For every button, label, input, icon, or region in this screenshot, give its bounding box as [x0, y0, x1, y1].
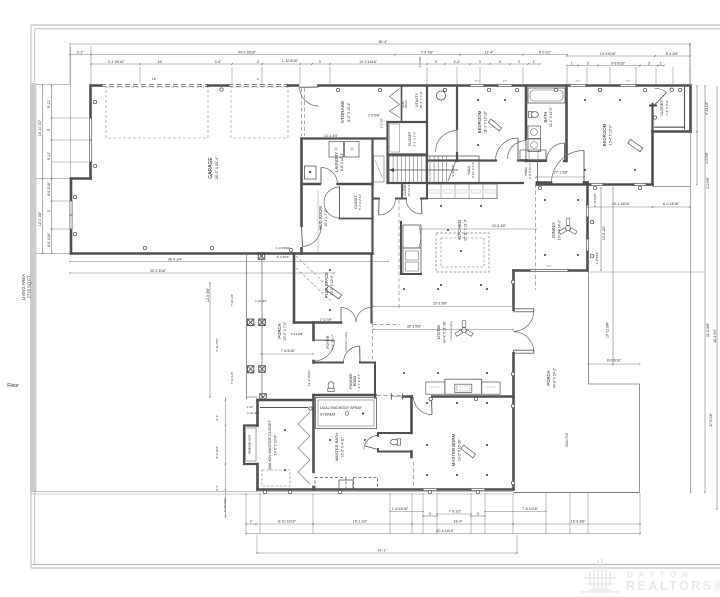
svg-text:8'-10 13/16": 8'-10 13/16"	[278, 520, 297, 524]
svg-text:4'-2" X 6'-7": 4'-2" X 6'-7"	[331, 334, 335, 350]
svg-text:6'-6" X 12'-1": 6'-6" X 12'-1"	[340, 153, 344, 171]
svg-text:11'-1" X 12'-10": 11'-1" X 12'-10"	[484, 111, 488, 133]
svg-text:15'-1 1/2": 15'-1 1/2"	[353, 520, 368, 524]
svg-text:1': 1'	[571, 62, 574, 66]
svg-text:60'-4": 60'-4"	[379, 40, 388, 44]
svg-text:7'-10 3/4": 7'-10 3/4"	[230, 294, 234, 307]
svg-text:17'-11 3/8": 17'-11 3/8"	[606, 321, 610, 338]
svg-text:10'-3 15/16": 10'-3 15/16"	[612, 202, 631, 206]
svg-text:12'-6 5/8": 12'-6 5/8"	[206, 287, 210, 302]
svg-text:15'-6 3/8": 15'-6 3/8"	[571, 520, 586, 524]
svg-text:7'-10 7/16": 7'-10 7/16"	[223, 498, 227, 512]
svg-text:3'-1": 3'-1"	[77, 51, 85, 55]
svg-text:4'-10 1/2": 4'-10 1/2"	[451, 165, 455, 177]
svg-text:2'-6" X 10'-2": 2'-6" X 10'-2"	[528, 163, 532, 179]
svg-text:3050: 3050	[576, 81, 582, 83]
svg-text:9'-1" X 4'-6": 9'-1" X 4'-6"	[413, 131, 417, 146]
svg-text:9'-11 1/2": 9'-11 1/2"	[705, 101, 709, 114]
svg-text:16': 16'	[158, 60, 163, 64]
svg-text:WALKIN MASTER CLOSET: WALKIN MASTER CLOSET	[267, 419, 272, 470]
svg-text:2'-1 15/16": 2'-1 15/16"	[108, 60, 125, 64]
svg-text:9'-11": 9'-11"	[47, 99, 51, 108]
svg-text:13'-1 3/4": 13'-1 3/4"	[324, 134, 339, 138]
svg-text:9'-2 3/16": 9'-2 3/16"	[277, 255, 290, 259]
svg-text:26'-2" X 33'-4": 26'-2" X 33'-4"	[215, 156, 219, 179]
svg-text:3': 3'	[518, 60, 521, 64]
svg-text:14'-5" X 10'-6": 14'-5" X 10'-6"	[274, 435, 278, 455]
svg-text:PANEL: PANEL	[404, 99, 408, 108]
svg-text:12'-0" X 12'-6": 12'-0" X 12'-6"	[330, 275, 334, 295]
svg-text:MASTER BDRM: MASTER BDRM	[451, 433, 456, 466]
svg-text:Cathedral Ceiling: Cathedral Ceiling	[449, 320, 453, 340]
svg-text:22'-3 3/8": 22'-3 3/8"	[433, 302, 448, 306]
svg-text:16': 16'	[152, 77, 156, 81]
svg-text:LIVING AREA: LIVING AREA	[21, 274, 26, 300]
svg-text:34'-0" X 14'-2": 34'-0" X 14'-2"	[553, 368, 557, 388]
svg-text:7'-8 5/16": 7'-8 5/16"	[281, 349, 296, 353]
svg-text:36'-4 1/4": 36'-4 1/4"	[168, 258, 183, 262]
svg-text:12'-0 1/8": 12'-0 1/8"	[38, 211, 42, 226]
svg-text:8'-0 5/16": 8'-0 5/16"	[607, 359, 622, 363]
svg-text:12'-4": 12'-4"	[485, 51, 494, 55]
svg-text:4'-4": 4'-4"	[215, 415, 219, 421]
svg-text:4'-6 1/16": 4'-6 1/16"	[47, 181, 51, 196]
svg-text:4 1/2": 4 1/2"	[246, 405, 253, 409]
svg-text:2'-11 5/8": 2'-11 5/8"	[320, 318, 332, 322]
svg-text:15'-2" X 4'-11": 15'-2" X 4'-11"	[341, 437, 345, 457]
svg-text:7'-4" X 5'-0": 7'-4" X 5'-0"	[665, 100, 669, 116]
svg-text:10'-3 X 3'-6": 10'-3 X 3'-6"	[407, 181, 411, 196]
svg-text:1': 1'	[533, 60, 536, 64]
svg-text:7'-11 7/16": 7'-11 7/16"	[215, 338, 219, 352]
svg-text:30'-2 3/16": 30'-2 3/16"	[150, 269, 167, 273]
svg-text:8'-4 3/8": 8'-4 3/8"	[666, 52, 679, 56]
svg-text:6 1/2": 6 1/2"	[247, 371, 254, 375]
svg-text:2716 SQ FT: 2716 SQ FT	[27, 275, 32, 298]
svg-text:4'-7" X 4'-7": 4'-7" X 4'-7"	[357, 374, 361, 389]
svg-text:7'-11 1/4": 7'-11 1/4"	[230, 372, 234, 384]
svg-text:MASTER BATH: MASTER BATH	[334, 433, 339, 461]
svg-text:CLOSET: CLOSET	[408, 131, 412, 146]
svg-text:13'-3 11/16": 13'-3 11/16"	[359, 60, 378, 64]
svg-text:46'-1 3/4": 46'-1 3/4"	[713, 329, 717, 342]
svg-text:2'-5 5/8": 2'-5 5/8"	[368, 114, 381, 118]
svg-text:3'-0 1/2": 3'-0 1/2"	[380, 118, 384, 128]
svg-text:1'-0 15/16": 1'-0 15/16"	[276, 246, 290, 250]
svg-text:2'-0 5/16": 2'-0 5/16"	[418, 56, 422, 67]
svg-text:3': 3'	[477, 512, 480, 516]
svg-text:BEDROOM: BEDROOM	[602, 123, 607, 146]
svg-text:7'-4 7/8": 7'-4 7/8"	[421, 51, 434, 55]
svg-text:3': 3'	[479, 60, 482, 64]
svg-text:11'-1" X 12'-5": 11'-1" X 12'-5"	[549, 107, 553, 127]
svg-text:13'-11" X 21'-3": 13'-11" X 21'-3"	[464, 219, 468, 241]
svg-text:MUD ROOM: MUD ROOM	[318, 206, 323, 230]
svg-text:1'-10 3/4": 1'-10 3/4"	[247, 411, 259, 415]
svg-text:12'-2 15/16": 12'-2 15/16"	[307, 370, 311, 386]
svg-text:3': 3'	[47, 209, 51, 212]
svg-text:4'-1": 4'-1"	[215, 485, 219, 491]
svg-text:3050: 3050	[475, 81, 481, 83]
svg-text:13'-6 1/2": 13'-6 1/2"	[602, 225, 606, 240]
svg-text:9'-11": 9'-11"	[47, 151, 51, 160]
svg-text:STORAGE: STORAGE	[340, 101, 345, 123]
svg-text:3': 3'	[648, 62, 651, 66]
svg-text:1': 1'	[660, 62, 663, 66]
svg-text:Cathedral Ceiling: Cathedral Ceiling	[344, 331, 348, 351]
svg-text:19'-2" X 15'-10": 19'-2" X 15'-10"	[458, 439, 462, 461]
svg-text:2'-0 5/16": 2'-0 5/16"	[595, 252, 599, 265]
svg-text:7'-8 1/2": 7'-8 1/2"	[449, 510, 462, 514]
svg-text:32'-1 5/8": 32'-1 5/8"	[407, 325, 422, 329]
svg-text:BEDROOM: BEDROOM	[477, 110, 482, 133]
svg-text:3': 3'	[587, 62, 590, 66]
svg-text:2650: 2650	[547, 266, 553, 268]
svg-text:REALTORS®: REALTORS®	[626, 579, 720, 593]
svg-text:1'-8 13/16": 1'-8 13/16"	[392, 507, 409, 511]
svg-text:5'-1" X 2'-11": 5'-1" X 2'-11"	[358, 194, 362, 210]
svg-text:KITCHEN: KITCHEN	[457, 220, 462, 239]
svg-text:3': 3'	[319, 60, 322, 64]
svg-text:41'-1": 41'-1"	[378, 549, 387, 553]
svg-text:14'-4" X 21'-10": 14'-4" X 21'-10"	[443, 321, 447, 343]
svg-text:1'-10 3/4": 1'-10 3/4"	[255, 299, 267, 303]
svg-text:44'-0 15/16": 44'-0 15/16"	[238, 51, 257, 55]
svg-text:14'-10 1/2": 14'-10 1/2"	[38, 119, 42, 136]
svg-text:WINDOW SEAT: WINDOW SEAT	[248, 434, 252, 454]
svg-text:4'-4": 4'-4"	[454, 60, 462, 64]
svg-text:Floor: Floor	[7, 383, 19, 389]
svg-text:8'-2" X 15'-6": 8'-2" X 15'-6"	[347, 101, 351, 121]
svg-text:10'-1 X 7'-1": 10'-1 X 7'-1"	[324, 209, 328, 226]
svg-text:13'-6 5/16": 13'-6 5/16"	[600, 52, 617, 56]
svg-text:8'-0 1/16": 8'-0 1/16"	[215, 446, 219, 459]
svg-text:17'-8 1/8": 17'-8 1/8"	[709, 413, 713, 426]
svg-text:2'-0 5/8": 2'-0 5/8"	[706, 177, 710, 189]
svg-text:3': 3'	[429, 512, 432, 516]
svg-text:23'-5" X 7'-5": 23'-5" X 7'-5"	[283, 322, 287, 340]
svg-text:BATH: BATH	[543, 112, 548, 123]
svg-text:PORCH: PORCH	[277, 323, 282, 338]
svg-text:FOYER: FOYER	[326, 335, 330, 348]
svg-text:4'-6 1/16": 4'-6 1/16"	[47, 232, 51, 247]
svg-text:GARAGE: GARAGE	[208, 157, 214, 179]
svg-text:SYSREM: SYSREM	[320, 413, 335, 417]
svg-text:1'-10 5/16": 1'-10 5/16"	[282, 59, 299, 63]
svg-text:VAULTED: VAULTED	[565, 432, 569, 447]
svg-text:4': 4'	[257, 60, 260, 64]
svg-text:24'-5 3/8": 24'-5 3/8"	[492, 224, 507, 228]
svg-text:4'-0 5/8": 4'-0 5/8"	[705, 152, 709, 164]
svg-text:2'-11 5/8": 2'-11 5/8"	[291, 332, 303, 336]
svg-text:3'-6": 3'-6"	[215, 60, 223, 64]
svg-text:DUAL END BODY SPRAY: DUAL END BODY SPRAY	[320, 406, 363, 410]
svg-text:FLEX SPACE: FLEX SPACE	[324, 272, 329, 298]
svg-text:10'-1" X 7'-0": 10'-1" X 7'-0"	[419, 91, 423, 108]
svg-text:4'-10" X 3'-2": 4'-10" X 3'-2"	[471, 162, 475, 178]
svg-text:CLOSET: CLOSET	[660, 100, 664, 116]
svg-text:18'-4": 18'-4"	[454, 520, 463, 524]
svg-text:27'-1 5/8": 27'-1 5/8"	[554, 171, 569, 175]
svg-text:3050: 3050	[626, 81, 632, 83]
svg-text:8'-0 13/16": 8'-0 13/16"	[663, 202, 680, 206]
svg-text:8'-0 1/2": 8'-0 1/2"	[539, 51, 552, 55]
svg-text:15'-4" X 13'-0": 15'-4" X 13'-0"	[609, 125, 613, 145]
svg-text:PORCH: PORCH	[546, 370, 551, 385]
svg-text:42'-6 11/16": 42'-6 11/16"	[436, 529, 455, 533]
svg-text:31'-5 5/8": 31'-5 5/8"	[706, 322, 710, 337]
svg-text:DINING: DINING	[551, 222, 556, 238]
svg-text:2': 2'	[250, 520, 253, 524]
svg-text:3': 3'	[435, 60, 438, 64]
svg-text:2'-10 5/16": 2'-10 5/16"	[593, 193, 597, 207]
svg-text:4': 4'	[499, 60, 502, 64]
svg-text:7'-8 11/16": 7'-8 11/16"	[522, 507, 539, 511]
svg-text:3': 3'	[47, 128, 51, 131]
svg-text:LAUNDRY: LAUNDRY	[334, 152, 339, 172]
svg-text:3050: 3050	[503, 81, 509, 83]
svg-text:LIVING: LIVING	[436, 324, 441, 339]
svg-text:9'-6 5/16": 9'-6 5/16"	[611, 62, 626, 66]
